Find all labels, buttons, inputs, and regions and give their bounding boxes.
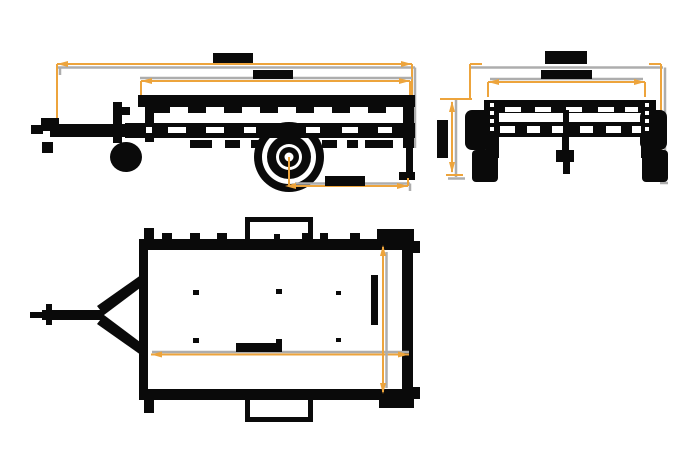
front-center-jack: [556, 110, 574, 174]
side-under-rail-dashes: [152, 107, 386, 113]
side-axle-rear-label-blob: [325, 176, 365, 186]
plan-right-wall: [402, 239, 413, 400]
plan-bottom-fender: [245, 398, 313, 422]
side-rear-post: [403, 95, 414, 148]
front-inner-width-label-blob: [541, 70, 592, 79]
side-dim-bed-length: [140, 70, 412, 95]
plan-rear-hinge-bar: [371, 275, 378, 325]
plan-bottom-wall: [139, 389, 413, 400]
plan-length-label-blob: [236, 343, 282, 352]
plan-view-trailer-body: [30, 217, 420, 422]
side-view: [31, 53, 415, 192]
side-bed-length-label-blob: [253, 70, 293, 79]
front-dim-inner-width: [488, 70, 645, 97]
side-coupler: [41, 118, 59, 131]
front-view: [437, 51, 668, 183]
trailer-three-view-drawing: [0, 0, 700, 467]
front-view-trailer-body: [465, 100, 668, 182]
front-overall-width-label-blob: [545, 51, 587, 64]
side-top-rail: [138, 95, 415, 107]
drawing-sheet: [0, 0, 700, 467]
plan-bottom-right-block: [379, 389, 414, 408]
plan-floor-bolts: [193, 289, 341, 343]
side-overall-length-label-blob: [213, 53, 253, 63]
plan-dim-width: [380, 245, 387, 394]
plan-view: [30, 217, 420, 422]
front-coupler-block: [437, 120, 448, 158]
plan-left-wall: [139, 239, 148, 400]
side-drawbar: [50, 124, 146, 137]
side-jockey-wheel: [110, 142, 142, 172]
plan-dim-length: [151, 343, 409, 358]
side-jockey-post: [113, 102, 122, 143]
plan-drawbar: [30, 270, 148, 360]
side-coupler-tip: [31, 125, 43, 134]
